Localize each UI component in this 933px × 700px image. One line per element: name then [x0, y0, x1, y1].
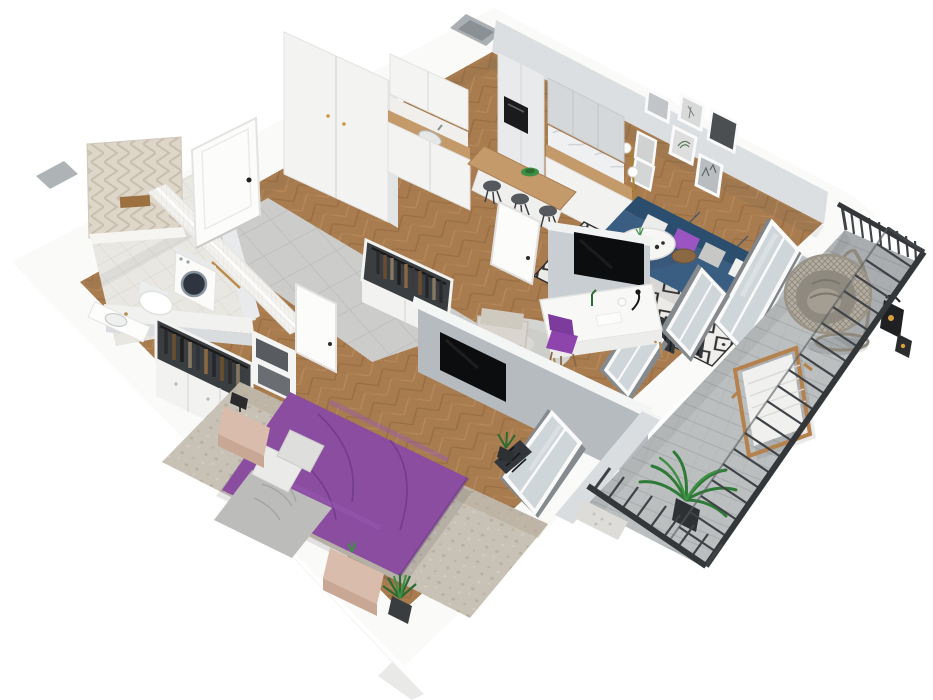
floor-plan-canvas: [0, 0, 933, 700]
wall-tray: [120, 195, 151, 208]
wall-skirt-corner: [378, 662, 424, 700]
door-handle: [247, 178, 252, 183]
side-table: [672, 249, 696, 263]
apartment-3d-floor-plan: [0, 0, 933, 700]
wall-niche: [36, 161, 78, 189]
